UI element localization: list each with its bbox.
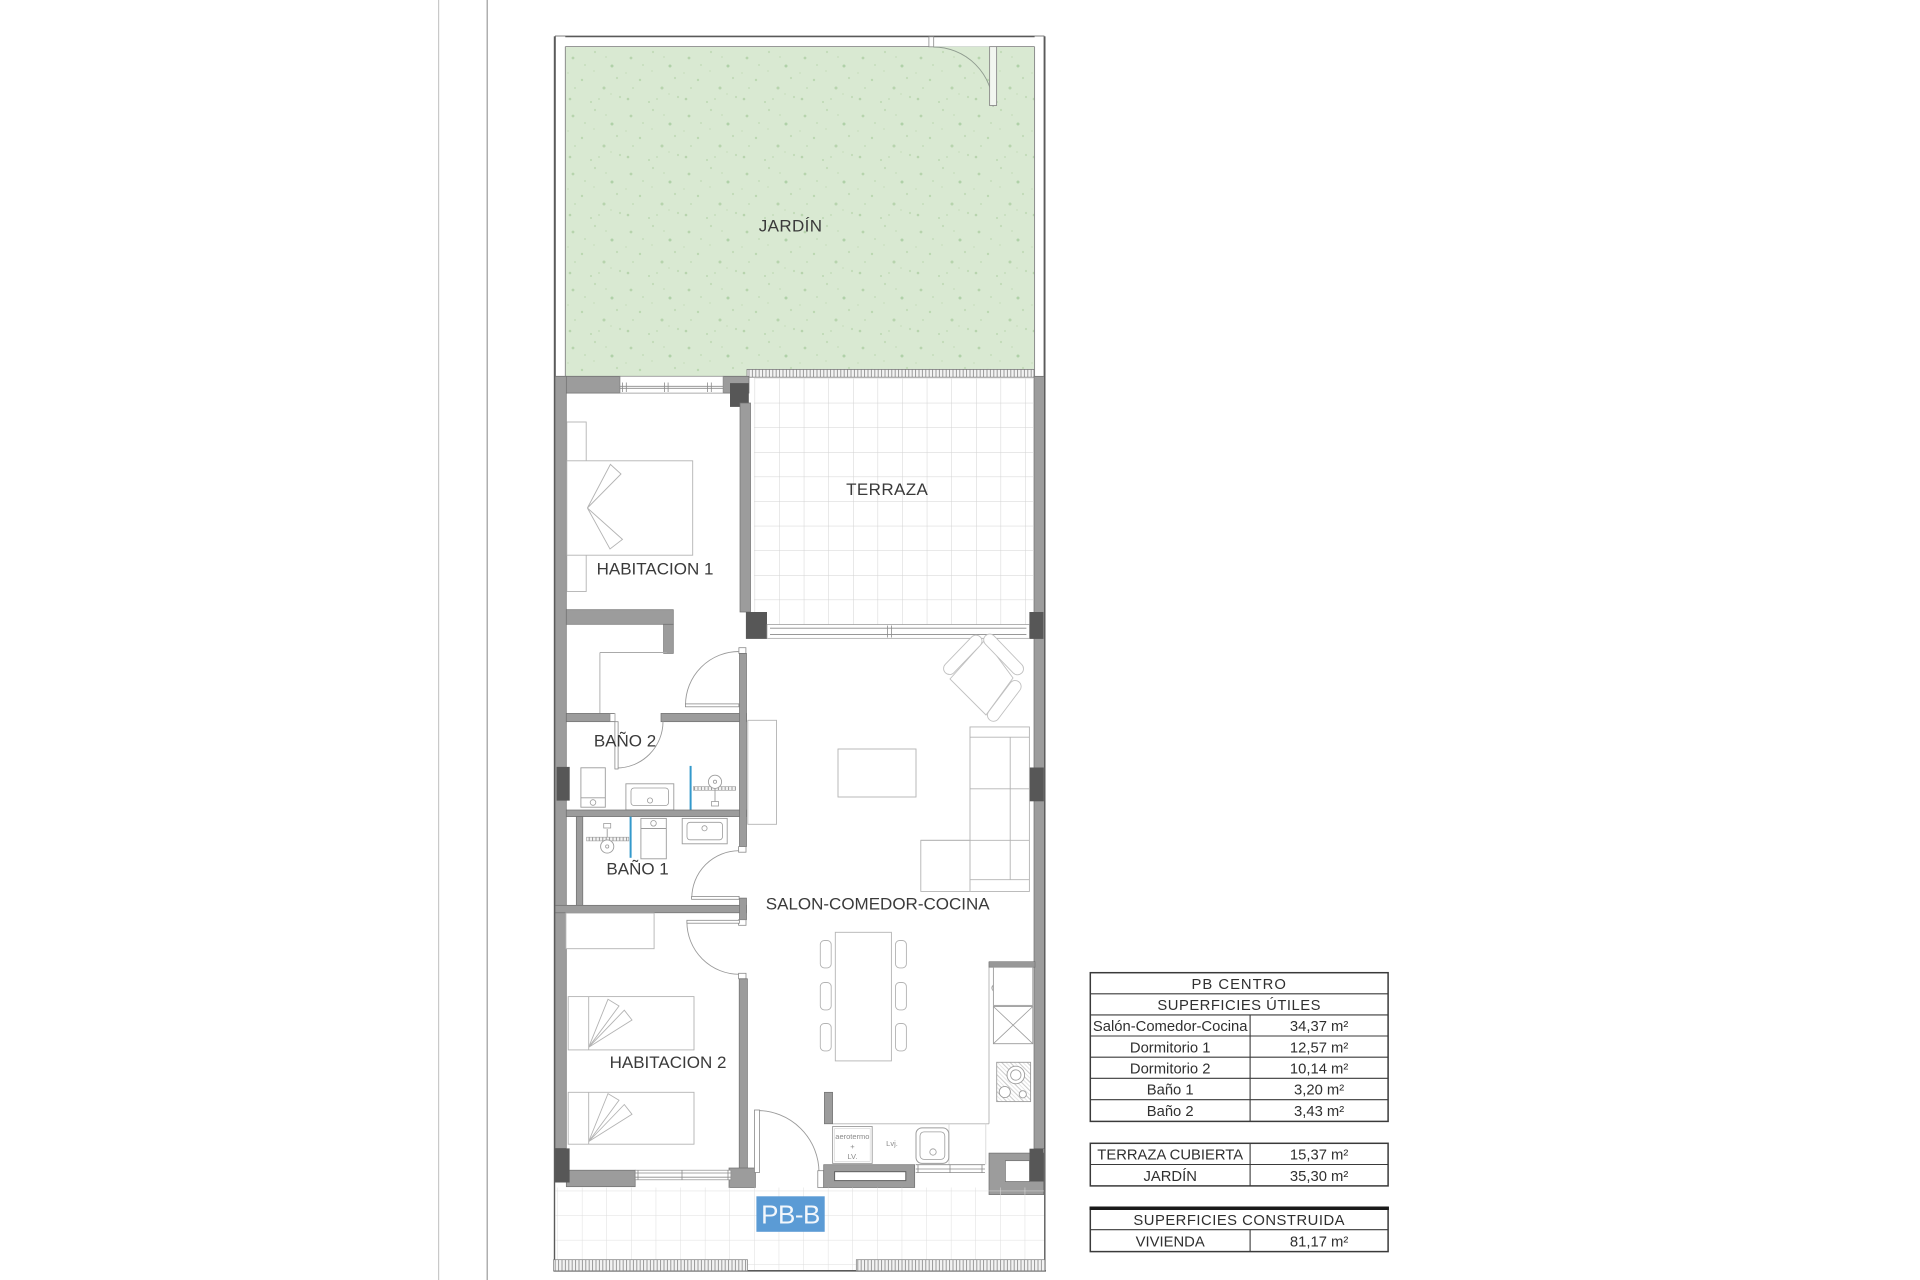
svg-text:12,57 m²: 12,57 m²: [1290, 1040, 1348, 1056]
svg-text:SALON-COMEDOR-COCINA: SALON-COMEDOR-COCINA: [766, 895, 991, 914]
svg-text:35,30 m²: 35,30 m²: [1290, 1169, 1348, 1185]
svg-text:HABITACION 2: HABITACION 2: [610, 1053, 727, 1072]
svg-text:SUPERFICIES CONSTRUIDA: SUPERFICIES CONSTRUIDA: [1133, 1213, 1345, 1229]
svg-text:SUPERFICIES ÚTILES: SUPERFICIES ÚTILES: [1157, 997, 1321, 1014]
svg-text:JARDÍN: JARDÍN: [1143, 1168, 1196, 1185]
svg-text:aerotermo: aerotermo: [835, 1132, 869, 1141]
svg-text:15,37 m²: 15,37 m²: [1290, 1148, 1348, 1164]
svg-text:Lvj.: Lvj.: [886, 1139, 898, 1148]
svg-text:81,17 m²: 81,17 m²: [1290, 1234, 1348, 1250]
svg-text:3,43 m²: 3,43 m²: [1294, 1104, 1344, 1120]
svg-text:HABITACION 1: HABITACION 1: [597, 559, 714, 578]
svg-text:+: +: [850, 1142, 855, 1151]
svg-text:3,20 m²: 3,20 m²: [1294, 1083, 1344, 1099]
svg-text:10,14 m²: 10,14 m²: [1290, 1061, 1348, 1077]
svg-text:TERRAZA: TERRAZA: [846, 480, 928, 499]
svg-text:TERRAZA CUBIERTA: TERRAZA CUBIERTA: [1097, 1148, 1243, 1164]
svg-text:Salón-Comedor-Cocina: Salón-Comedor-Cocina: [1093, 1019, 1248, 1035]
svg-text:BAÑO 1: BAÑO 1: [606, 859, 668, 878]
svg-text:Dormitorio 1: Dormitorio 1: [1130, 1040, 1211, 1056]
svg-text:Baño 1: Baño 1: [1147, 1083, 1194, 1099]
svg-text:PB CENTRO: PB CENTRO: [1192, 977, 1287, 993]
svg-text:LV.: LV.: [847, 1152, 857, 1161]
svg-text:VIVIENDA: VIVIENDA: [1136, 1234, 1205, 1250]
svg-text:PB-B: PB-B: [761, 1200, 820, 1230]
svg-text:34,37 m²: 34,37 m²: [1290, 1019, 1348, 1035]
svg-text:JARDÍN: JARDÍN: [759, 217, 823, 236]
svg-text:Baño 2: Baño 2: [1147, 1104, 1194, 1120]
svg-text:BAÑO 2: BAÑO 2: [594, 731, 656, 750]
svg-text:Dormitorio 2: Dormitorio 2: [1130, 1061, 1211, 1077]
